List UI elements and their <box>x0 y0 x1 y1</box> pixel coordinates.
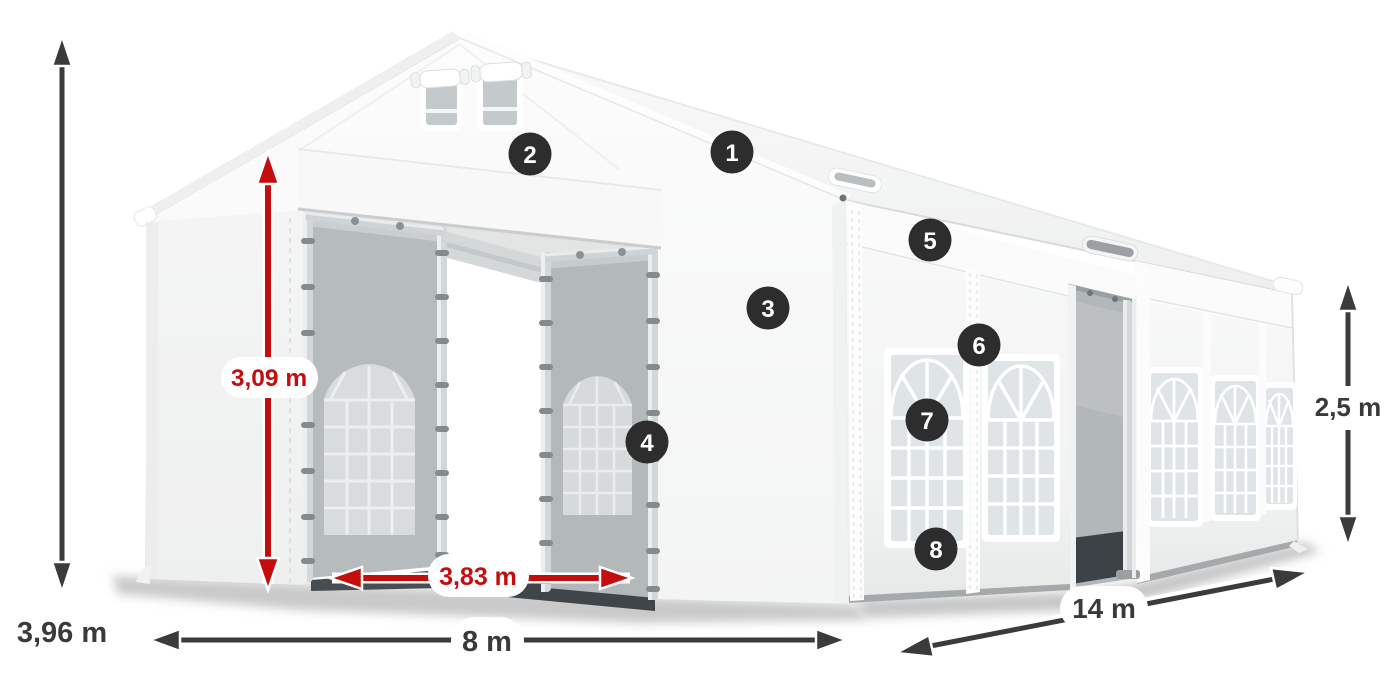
svg-text:3: 3 <box>761 296 774 323</box>
svg-text:2,5 m: 2,5 m <box>1315 392 1382 422</box>
svg-text:1: 1 <box>725 140 738 167</box>
svg-text:5: 5 <box>923 228 936 255</box>
svg-text:8 m: 8 m <box>462 626 512 658</box>
svg-text:4: 4 <box>640 430 654 457</box>
svg-text:6: 6 <box>972 333 985 360</box>
svg-text:3,96 m: 3,96 m <box>17 617 107 649</box>
svg-text:3,83 m: 3,83 m <box>439 563 517 591</box>
svg-text:8: 8 <box>929 537 942 564</box>
svg-text:3,09 m: 3,09 m <box>231 365 307 392</box>
svg-text:7: 7 <box>920 408 933 435</box>
svg-text:2: 2 <box>523 142 536 169</box>
svg-text:14 m: 14 m <box>1072 593 1136 624</box>
